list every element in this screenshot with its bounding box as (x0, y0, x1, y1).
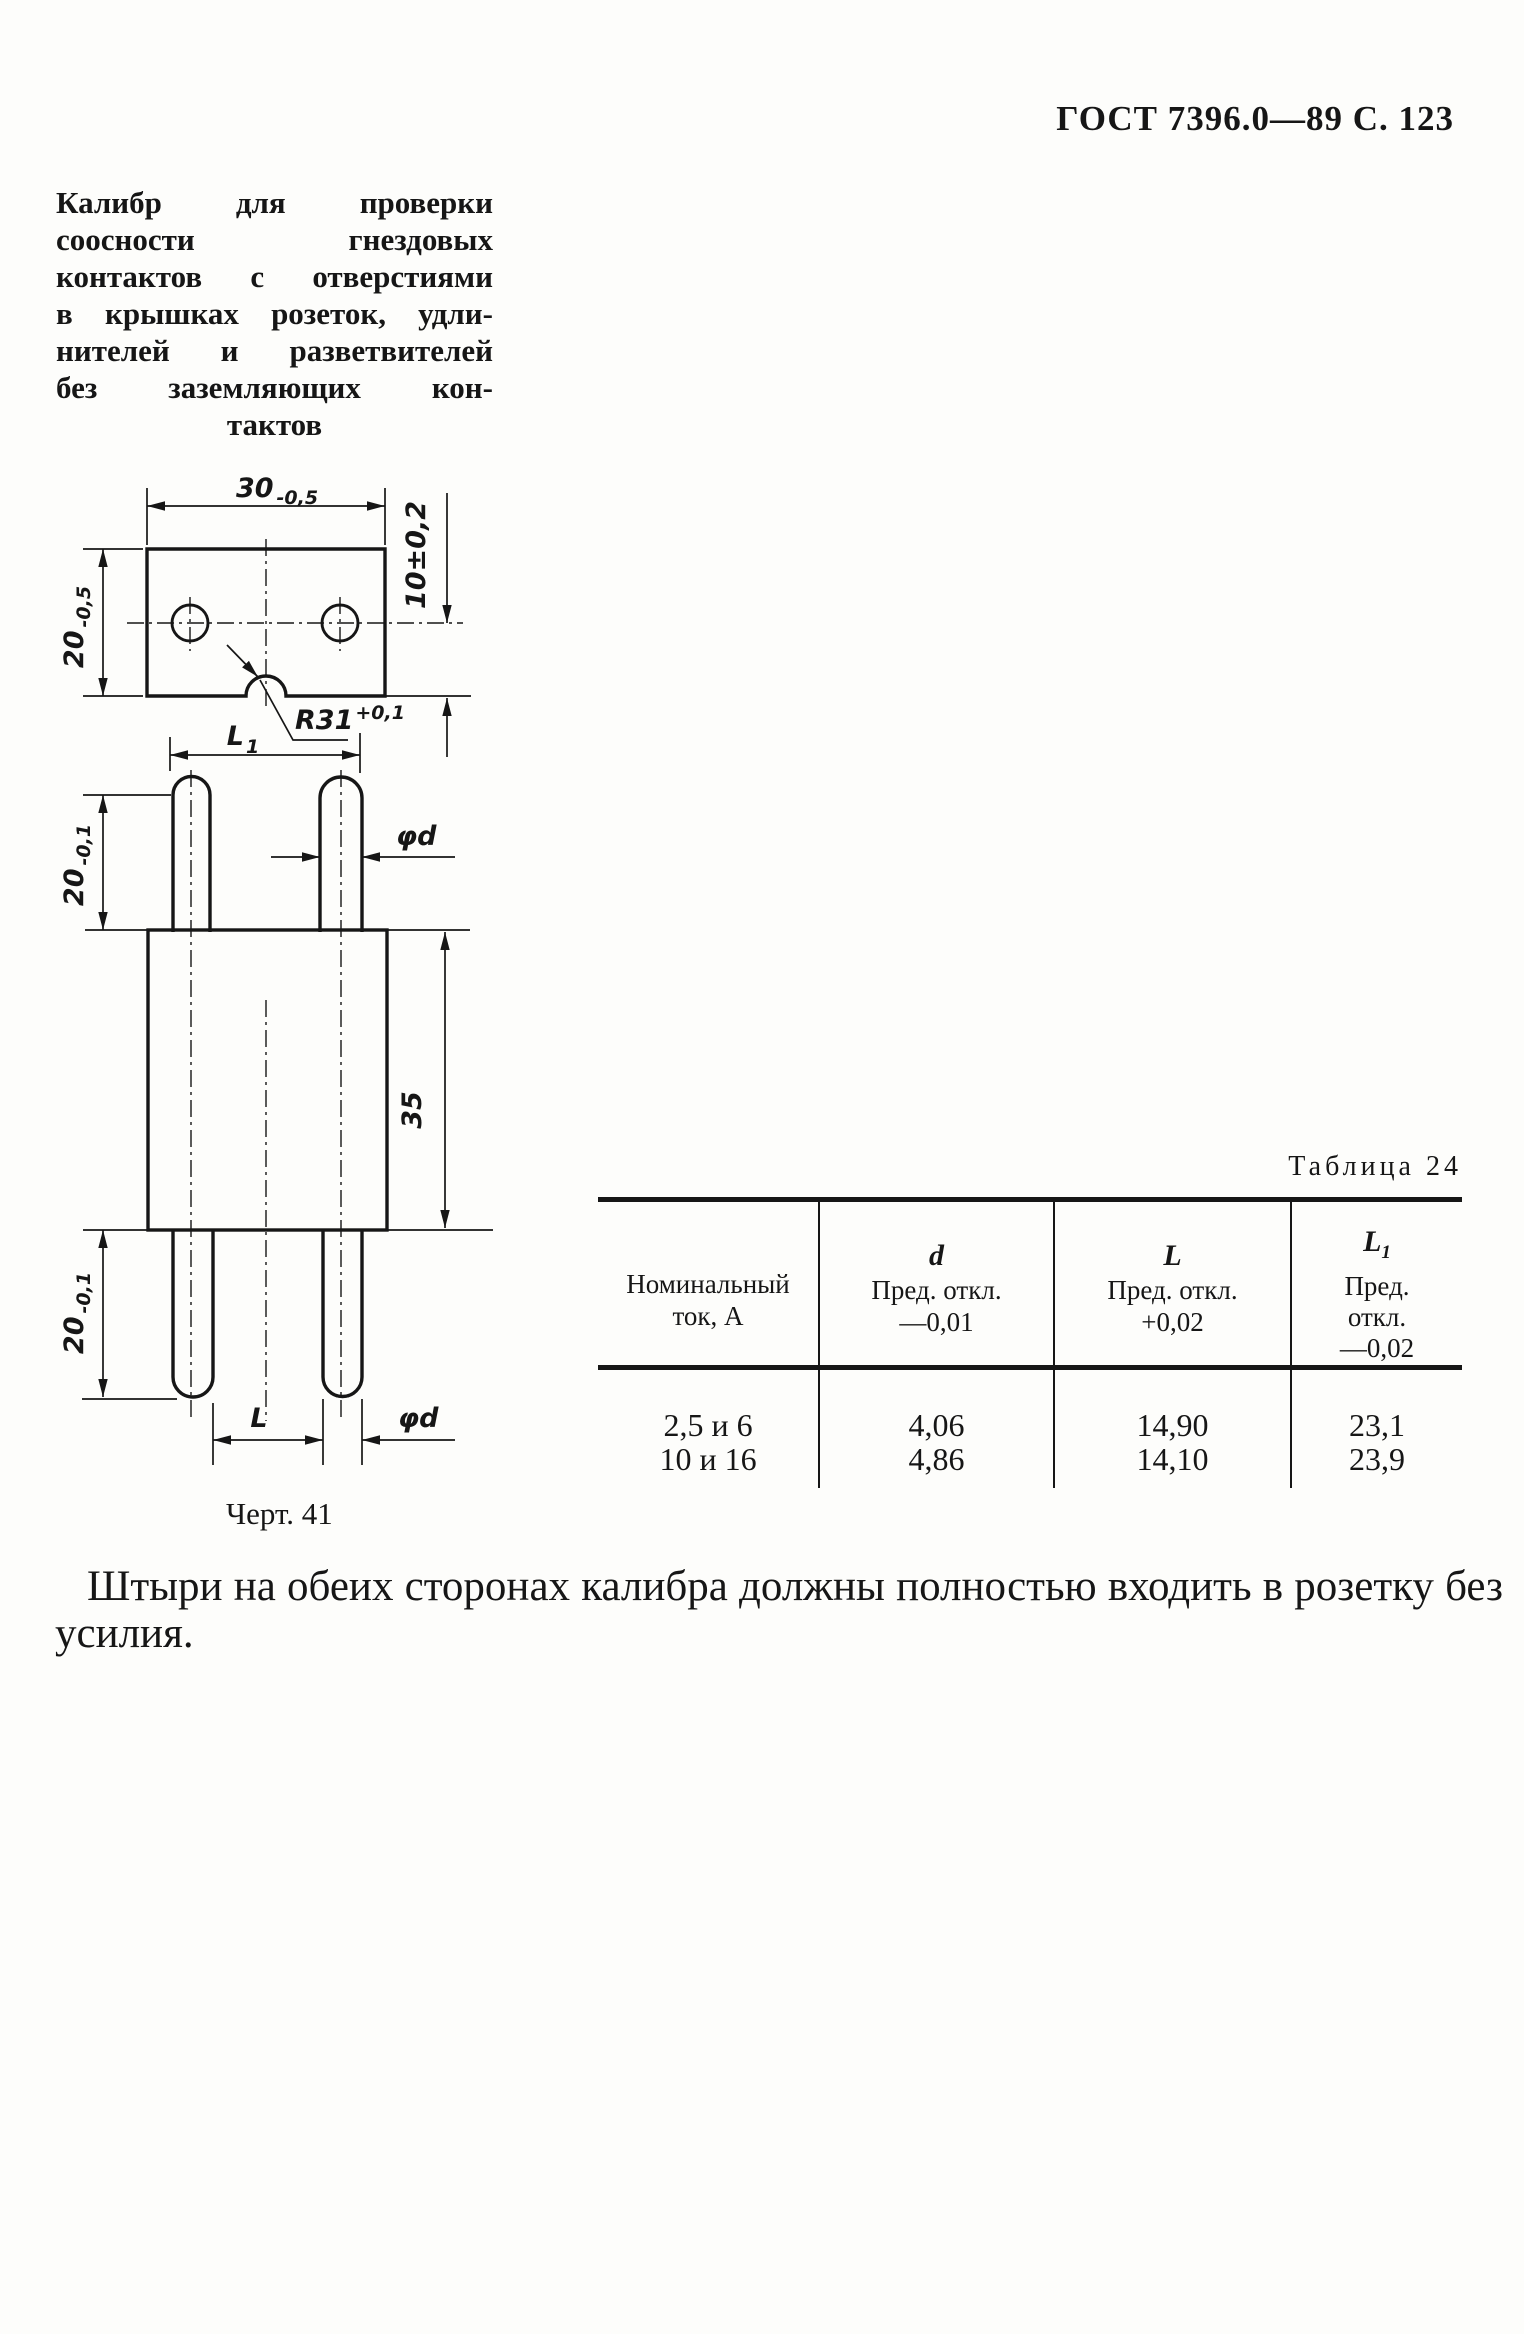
data-table: Номинальный ток, А d Пред. откл. —0,01 L… (598, 1197, 1462, 1488)
svg-text:φd: φd (396, 821, 437, 852)
dim-notch-radius: R31+0,1 (227, 645, 405, 740)
table-value: 2,5 и 6 (598, 1408, 818, 1442)
svg-text:L1: L1 (227, 721, 259, 758)
page-header: ГОСТ 7396.0—89 С. 123 (1056, 99, 1454, 139)
document-page: ГОСТ 7396.0—89 С. 123 Калибр для проверк… (0, 0, 1524, 2334)
gauge-body (148, 930, 387, 1230)
table-title: Таблица 24 (1288, 1151, 1462, 1183)
dim-pin-diameter-bottom: φd (362, 1403, 455, 1440)
column-header-d: d Пред. откл. —0,01 (820, 1202, 1055, 1365)
dim-pin-length-top: 20-0,1 (59, 795, 103, 930)
dim-pin-length-bottom: 20-0,1 (59, 1230, 103, 1397)
svg-text:20-0,1: 20-0,1 (59, 1272, 95, 1354)
gauge-front-view (82, 770, 493, 1421)
column-header-L: L Пред. откл. +0,02 (1055, 1202, 1292, 1365)
table-cell-current: 2,5 и 6 10 и 16 (598, 1370, 820, 1488)
svg-text:φd: φd (398, 1403, 439, 1434)
column-header-current: Номинальный ток, А (598, 1202, 820, 1365)
intro-line: в крышках розеток, удли- (56, 295, 493, 332)
intro-paragraph: Калибр для проверки соосности гнездовых … (56, 184, 493, 443)
pin-bottom-left (173, 1230, 213, 1397)
intro-line: контактов с отверстиями (56, 258, 493, 295)
table-header-row: Номинальный ток, А d Пред. откл. —0,01 L… (598, 1202, 1462, 1370)
svg-text:L: L (250, 1403, 267, 1434)
table-value: 4,86 (820, 1442, 1053, 1476)
svg-text:30-0,5: 30-0,5 (236, 473, 318, 509)
table-value: 10 и 16 (598, 1442, 818, 1476)
intro-line: без заземляющих кон- (56, 369, 493, 406)
svg-text:R31+0,1: R31+0,1 (295, 702, 405, 736)
svg-text:20-0,1: 20-0,1 (59, 824, 95, 906)
column-header-L1: L1 Пред. откл. —0,02 (1292, 1202, 1462, 1365)
table-value: 14,90 (1055, 1408, 1290, 1442)
intro-line: тактов (56, 406, 493, 443)
intro-line: соосности гнездовых (56, 221, 493, 258)
table-value: 4,06 (820, 1408, 1053, 1442)
intro-line: Калибр для проверки (56, 184, 493, 221)
table-cell-L: 14,90 14,10 (1055, 1370, 1292, 1488)
closing-paragraph: Штыри на обеих сторонах калибра должны п… (55, 1563, 1503, 1657)
dim-top-width: 30-0,5 (147, 473, 385, 545)
svg-text:35: 35 (397, 1091, 428, 1129)
table-value: 23,1 (1292, 1408, 1462, 1442)
table-cell-d: 4,06 4,86 (820, 1370, 1055, 1488)
table-body: 2,5 и 6 10 и 16 4,06 4,86 14,90 14,10 23… (598, 1370, 1462, 1488)
figure-caption: Черт. 41 (226, 1496, 333, 1532)
intro-line: нителей и разветвителей (56, 332, 493, 369)
pin-bottom-right (323, 1230, 362, 1397)
dim-body-height: 35 (397, 932, 445, 1228)
table-cell-L1: 23,1 23,9 (1292, 1370, 1462, 1488)
table-value: 23,9 (1292, 1442, 1462, 1476)
table-value: 14,10 (1055, 1442, 1290, 1476)
dim-l: L (213, 1399, 362, 1465)
svg-text:20-0,5: 20-0,5 (59, 586, 95, 668)
technical-drawing: 30-0,5 20-0,5 10±0,2 R31+0,1 L1 (55, 455, 495, 1540)
svg-text:10±0,2: 10±0,2 (401, 501, 432, 609)
